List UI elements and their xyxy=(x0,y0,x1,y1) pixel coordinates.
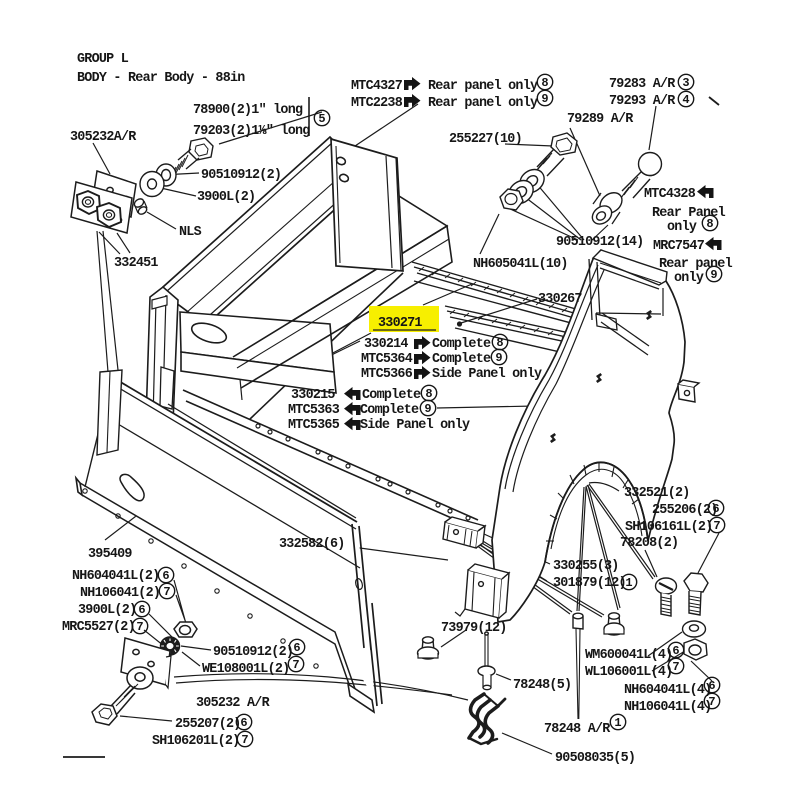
svg-text:4: 4 xyxy=(682,93,689,107)
svg-text:6: 6 xyxy=(712,502,719,516)
svg-text:9: 9 xyxy=(424,402,431,416)
svg-text:Rear Panel: Rear Panel xyxy=(652,206,726,221)
svg-text:330255(3): 330255(3) xyxy=(553,559,619,574)
svg-text:MTC4327: MTC4327 xyxy=(351,79,403,94)
svg-text:only: only xyxy=(667,220,697,235)
svg-text:79289 A/R: 79289 A/R xyxy=(567,112,634,127)
svg-text:73979(12): 73979(12) xyxy=(441,621,507,636)
svg-text:395409: 395409 xyxy=(88,547,132,562)
svg-text:WM600041L(4): WM600041L(4) xyxy=(585,648,672,663)
svg-text:330267: 330267 xyxy=(538,292,582,307)
svg-text:7: 7 xyxy=(708,695,715,709)
svg-text:79203(2)1⅛" long: 79203(2)1⅛" long xyxy=(193,124,310,139)
svg-text:1: 1 xyxy=(614,716,621,730)
svg-text:MRC5527(2): MRC5527(2) xyxy=(62,620,135,635)
svg-text:3900L(2): 3900L(2) xyxy=(78,603,136,618)
svg-text:255206(2): 255206(2) xyxy=(652,503,718,518)
svg-text:330271: 330271 xyxy=(378,316,422,331)
svg-text:6: 6 xyxy=(138,603,145,617)
svg-text:Complete: Complete xyxy=(360,403,419,418)
svg-text:7: 7 xyxy=(672,660,679,674)
svg-text:7: 7 xyxy=(163,585,170,599)
svg-text:Side Panel only: Side Panel only xyxy=(432,367,542,382)
svg-text:8: 8 xyxy=(496,336,503,350)
svg-text:Rear panel: Rear panel xyxy=(659,257,733,272)
svg-text:NLS: NLS xyxy=(179,225,202,240)
svg-text:7: 7 xyxy=(292,658,299,672)
svg-text:332582(6): 332582(6) xyxy=(279,537,345,552)
svg-text:SH106161L(2): SH106161L(2) xyxy=(625,520,712,535)
svg-text:NH604041L(4): NH604041L(4) xyxy=(624,683,711,698)
svg-text:Rear panel only: Rear panel only xyxy=(428,79,538,94)
svg-text:NH106041L(4): NH106041L(4) xyxy=(624,700,711,715)
svg-text:332521(2): 332521(2) xyxy=(624,486,690,501)
svg-text:7: 7 xyxy=(241,733,248,747)
svg-text:255207(2): 255207(2) xyxy=(175,717,241,732)
svg-text:SH106201L(2): SH106201L(2) xyxy=(152,734,239,749)
svg-text:Side Panel only: Side Panel only xyxy=(360,418,470,433)
svg-text:only: only xyxy=(674,271,704,286)
svg-text:WE108001L(2): WE108001L(2) xyxy=(202,662,289,677)
svg-text:5: 5 xyxy=(318,112,325,126)
svg-text:8: 8 xyxy=(706,217,713,231)
svg-text:NH605041L(10): NH605041L(10) xyxy=(473,257,568,272)
svg-text:330215: 330215 xyxy=(291,388,335,403)
svg-text:90510912(14): 90510912(14) xyxy=(556,235,643,250)
svg-text:6: 6 xyxy=(293,641,300,655)
svg-text:MTC2238: MTC2238 xyxy=(351,96,403,111)
svg-text:MTC5366: MTC5366 xyxy=(361,367,413,382)
svg-text:1: 1 xyxy=(625,576,632,590)
svg-text:NH604041L(2): NH604041L(2) xyxy=(72,569,159,584)
svg-text:BODY - Rear Body - 88in: BODY - Rear Body - 88in xyxy=(77,71,245,86)
svg-text:78248(5): 78248(5) xyxy=(513,678,571,693)
svg-text:9: 9 xyxy=(541,92,548,106)
svg-text:MTC5363: MTC5363 xyxy=(288,403,340,418)
svg-text:NH106041(2): NH106041(2) xyxy=(80,586,160,601)
svg-text:78208(2): 78208(2) xyxy=(620,536,678,551)
svg-text:255227(10): 255227(10) xyxy=(449,132,522,147)
svg-text:7: 7 xyxy=(713,519,720,533)
svg-text:6: 6 xyxy=(708,679,715,693)
svg-text:Rear panel only: Rear panel only xyxy=(428,96,538,111)
svg-text:90510912(2): 90510912(2) xyxy=(201,168,281,183)
svg-text:90510912(2): 90510912(2) xyxy=(213,645,293,660)
svg-text:9: 9 xyxy=(495,351,502,365)
svg-text:Complete: Complete xyxy=(432,337,491,352)
svg-text:78248 A/R: 78248 A/R xyxy=(544,722,611,737)
svg-text:9: 9 xyxy=(710,268,717,282)
svg-text:3900L(2): 3900L(2) xyxy=(197,190,255,205)
svg-text:8: 8 xyxy=(425,387,432,401)
svg-text:GROUP L: GROUP L xyxy=(77,52,129,67)
svg-text:6: 6 xyxy=(672,644,679,658)
svg-text:6: 6 xyxy=(240,716,247,730)
svg-text:305232 A/R: 305232 A/R xyxy=(196,696,271,711)
svg-text:WL106001L(4): WL106001L(4) xyxy=(585,665,672,680)
svg-text:MTC5365: MTC5365 xyxy=(288,418,340,433)
svg-text:301879(12): 301879(12) xyxy=(553,576,626,591)
svg-text:3: 3 xyxy=(682,76,689,90)
svg-text:8: 8 xyxy=(541,76,548,90)
svg-text:332451: 332451 xyxy=(114,256,158,271)
svg-text:MRC7547: MRC7547 xyxy=(653,239,705,254)
svg-text:330214: 330214 xyxy=(364,337,408,352)
svg-text:90508035(5): 90508035(5) xyxy=(555,751,635,766)
svg-text:Complete: Complete xyxy=(432,352,491,367)
svg-text:79293 A/R: 79293 A/R xyxy=(609,94,676,109)
svg-text:6: 6 xyxy=(162,569,169,583)
svg-text:MTC5364: MTC5364 xyxy=(361,352,413,367)
svg-text:78900(2)1" long: 78900(2)1" long xyxy=(193,103,303,118)
svg-text:305232A/R: 305232A/R xyxy=(70,130,137,145)
svg-text:7: 7 xyxy=(136,620,143,634)
svg-text:MTC4328: MTC4328 xyxy=(644,187,696,202)
svg-text:Complete: Complete xyxy=(362,388,421,403)
svg-text:79283 A/R: 79283 A/R xyxy=(609,77,676,92)
